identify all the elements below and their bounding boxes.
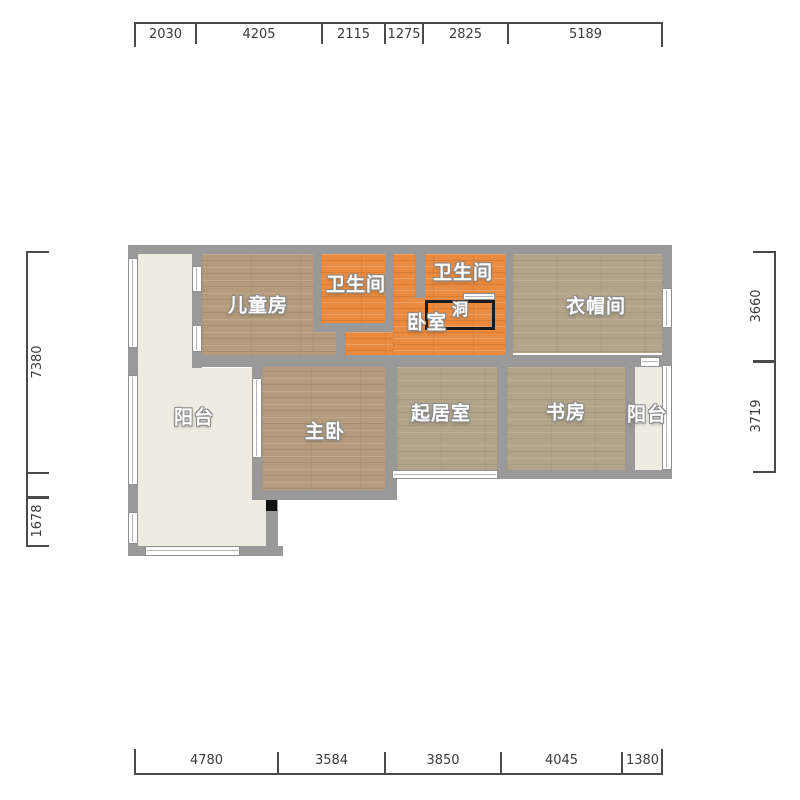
wall-bathroom1-bottom <box>313 323 393 332</box>
dim-value: 1275 <box>385 27 423 43</box>
dim-value: 3719 <box>749 381 765 451</box>
dim-tick <box>753 251 776 253</box>
room-floor-balcony-left-corner[interactable] <box>252 500 266 546</box>
room-floor-balcony-left-upper[interactable] <box>138 254 192 368</box>
wall-childrens-room-bathroom1 <box>313 245 321 332</box>
wall-bathroom2-stub <box>415 245 425 298</box>
wall-bedroom-cloakroom <box>505 245 513 355</box>
wall-ext-divider <box>336 332 345 355</box>
room-label-bathroom-2: 卫生间 <box>433 258 493 285</box>
dim-value: 1678 <box>30 486 46 556</box>
dim-value: 2115 <box>322 27 385 43</box>
dim-value: 4205 <box>196 27 322 43</box>
window-childrens-room-1 <box>192 266 202 292</box>
window-cloakroom-right <box>662 288 672 328</box>
window-master-bedroom-left <box>252 378 262 458</box>
dim-value: 3584 <box>278 753 385 769</box>
room-floor-bedroom-ext[interactable] <box>345 332 393 355</box>
window-childrens-room-2 <box>192 325 202 352</box>
room-label-hole: 洞 <box>452 296 468 320</box>
dim-tick <box>753 471 776 473</box>
dim-line <box>135 22 663 24</box>
window-left-3 <box>128 512 138 544</box>
dim-line <box>135 773 663 775</box>
floor-plan-canvas: 2030 4205 2115 1275 2825 5189 4780 3584 … <box>0 0 800 800</box>
dim-tick <box>753 360 776 363</box>
room-label-balcony-left: 阳台 <box>174 403 214 430</box>
wall-bathroom1-bedroom <box>385 245 393 332</box>
dim-tick <box>26 472 49 474</box>
window-left-1 <box>128 258 138 348</box>
window-living-room-bottom <box>392 470 498 479</box>
room-label-study: 书房 <box>546 398 586 425</box>
room-label-childrens-room: 儿童房 <box>228 291 288 318</box>
dim-value: 4045 <box>501 753 622 769</box>
dim-value: 5189 <box>508 27 663 43</box>
wall-outer-top <box>128 245 672 254</box>
room-label-balcony-right: 阳台 <box>627 400 667 427</box>
dim-value: 2030 <box>135 27 196 43</box>
room-label-master-bedroom: 主卧 <box>305 417 345 444</box>
room-label-bathroom-1: 卫生间 <box>326 270 386 297</box>
dim-tick <box>26 251 49 253</box>
dim-value: 2825 <box>423 27 508 43</box>
room-label-cloakroom: 衣帽间 <box>566 292 626 319</box>
window-left-2 <box>128 375 138 485</box>
room-floor-balcony-left[interactable] <box>138 368 252 546</box>
dim-value: 4780 <box>135 753 278 769</box>
room-floor-childrens-room-ext[interactable] <box>313 332 336 355</box>
wall-master-bedroom-bottom <box>252 490 397 500</box>
dim-value: 3850 <box>385 753 501 769</box>
dim-value: 3660 <box>749 271 765 341</box>
room-label-bedroom: 卧室 <box>407 308 447 335</box>
column-marker <box>266 500 277 511</box>
window-balcony-right-top <box>640 357 660 367</box>
wall-living-room-study <box>497 367 507 470</box>
room-label-living-room: 起居室 <box>411 399 471 426</box>
window-balcony-bottom <box>145 546 240 556</box>
dim-value: 7380 <box>30 327 46 397</box>
dim-value: 1380 <box>622 753 663 769</box>
wall-middle-band <box>202 355 662 367</box>
dim-line <box>26 252 28 547</box>
